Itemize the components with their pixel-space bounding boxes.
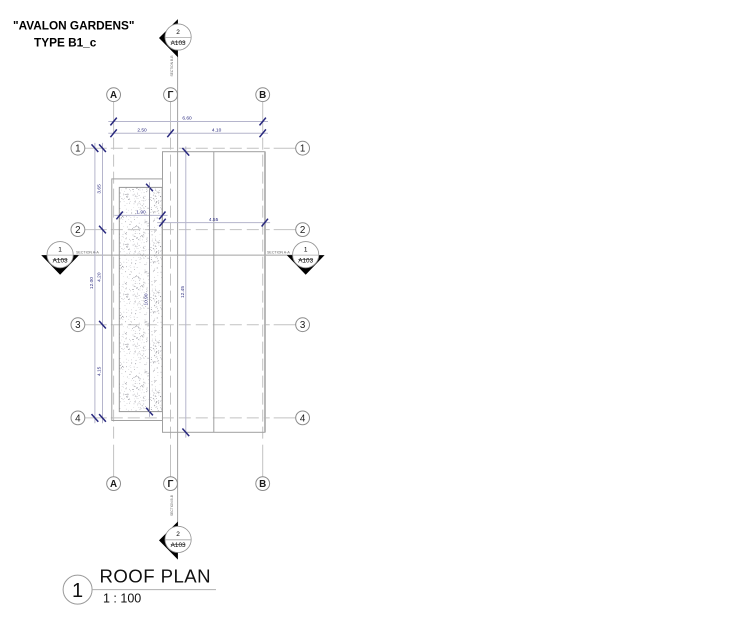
svg-text:12.00: 12.00 (89, 277, 95, 289)
svg-text:A: A (110, 479, 117, 490)
svg-text:SECTION A-A: SECTION A-A (267, 250, 290, 254)
svg-text:Γ: Γ (168, 90, 174, 101)
svg-text:3: 3 (300, 320, 306, 331)
svg-text:12.45: 12.45 (180, 286, 186, 298)
svg-text:3: 3 (75, 320, 81, 331)
svg-text:B: B (259, 90, 266, 101)
svg-text:1.90: 1.90 (136, 210, 146, 216)
svg-text:6.60: 6.60 (182, 116, 192, 122)
svg-text:"AVALON GARDENS": "AVALON GARDENS" (13, 19, 135, 33)
svg-text:A: A (110, 90, 117, 101)
svg-text:2: 2 (75, 225, 80, 236)
svg-text:SECTION B-B: SECTION B-B (170, 55, 174, 77)
svg-text:1: 1 (75, 144, 80, 155)
svg-text:10.90: 10.90 (144, 293, 150, 305)
svg-text:A103: A103 (53, 258, 68, 265)
svg-text:1: 1 (304, 247, 308, 254)
svg-text:4.15: 4.15 (97, 366, 103, 376)
svg-text:SECTION A-A: SECTION A-A (76, 250, 99, 254)
svg-text:A103: A103 (171, 40, 186, 47)
svg-text:2: 2 (176, 29, 180, 36)
svg-text:A103: A103 (298, 258, 313, 265)
svg-text:2: 2 (300, 225, 305, 236)
svg-text:1: 1 (300, 144, 305, 155)
svg-text:TYPE B1_c: TYPE B1_c (34, 35, 97, 49)
svg-text:3.65: 3.65 (97, 184, 103, 194)
svg-text:1 : 100: 1 : 100 (103, 591, 141, 605)
svg-text:1: 1 (58, 247, 62, 254)
svg-text:2.50: 2.50 (137, 128, 147, 134)
svg-text:4.20: 4.20 (97, 272, 103, 282)
svg-text:4: 4 (300, 413, 306, 424)
svg-text:B: B (259, 479, 266, 490)
svg-text:2: 2 (176, 531, 180, 538)
svg-text:4: 4 (75, 413, 81, 424)
svg-text:4.10: 4.10 (212, 128, 222, 134)
svg-text:A103: A103 (171, 542, 186, 549)
svg-text:4.55: 4.55 (209, 217, 219, 223)
svg-text:1: 1 (72, 580, 83, 602)
svg-text:SECTION B-B: SECTION B-B (170, 494, 174, 516)
svg-text:ROOF PLAN: ROOF PLAN (100, 565, 212, 586)
svg-text:Γ: Γ (168, 479, 174, 490)
